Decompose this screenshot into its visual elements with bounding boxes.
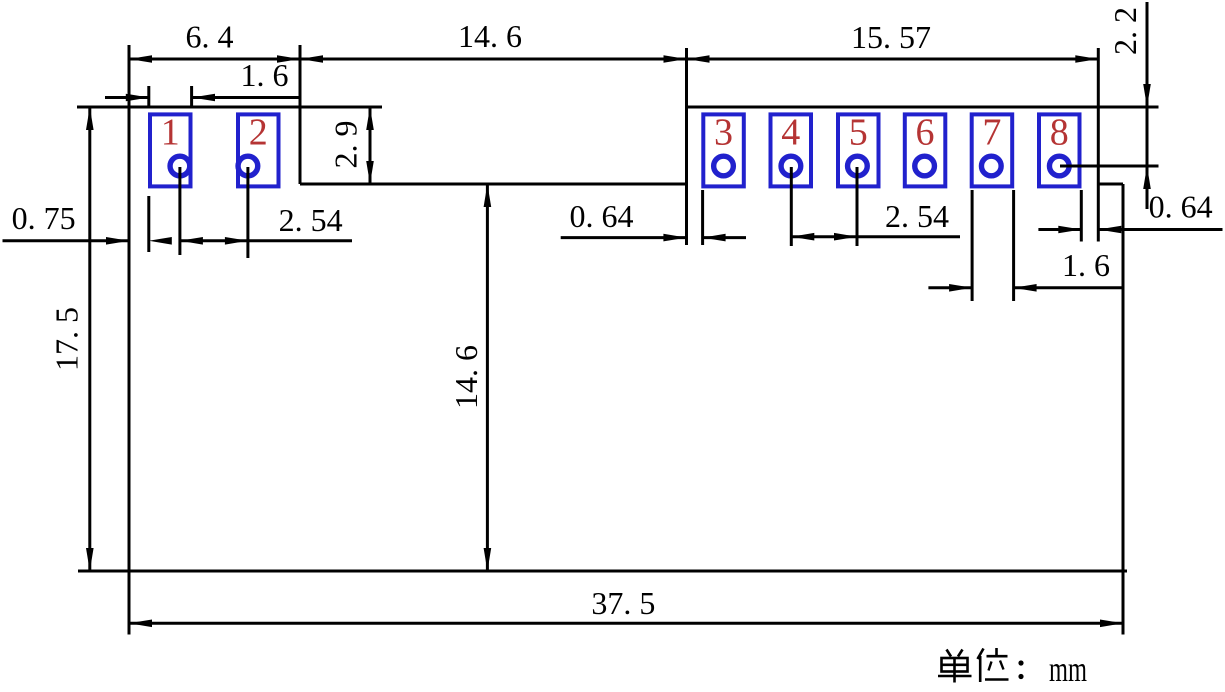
svg-text:2. 2: 2. 2 bbox=[1107, 7, 1143, 55]
svg-text:6. 4: 6. 4 bbox=[186, 19, 234, 55]
svg-text:1. 6: 1. 6 bbox=[1062, 247, 1110, 283]
svg-text:37. 5: 37. 5 bbox=[591, 585, 655, 621]
svg-text:2. 9: 2. 9 bbox=[328, 121, 364, 169]
svg-text:6: 6 bbox=[916, 112, 935, 154]
svg-text:2. 54: 2. 54 bbox=[279, 202, 343, 238]
svg-text:5: 5 bbox=[849, 112, 868, 154]
svg-text:8: 8 bbox=[1050, 112, 1069, 154]
svg-text:15. 57: 15. 57 bbox=[851, 19, 931, 55]
svg-text:17. 5: 17. 5 bbox=[49, 307, 85, 371]
svg-text:14. 6: 14. 6 bbox=[458, 18, 522, 54]
svg-text:mm: mm bbox=[1049, 649, 1087, 689]
svg-text:0. 64: 0. 64 bbox=[570, 198, 634, 234]
svg-text:4: 4 bbox=[781, 112, 800, 154]
svg-text:2. 54: 2. 54 bbox=[885, 198, 949, 234]
svg-text:7: 7 bbox=[982, 112, 1001, 154]
svg-text:0. 75: 0. 75 bbox=[12, 200, 76, 236]
svg-text:0. 64: 0. 64 bbox=[1149, 189, 1213, 225]
svg-text:3: 3 bbox=[714, 112, 733, 154]
svg-text:2: 2 bbox=[249, 112, 268, 154]
svg-text:14. 6: 14. 6 bbox=[448, 345, 484, 409]
svg-text:1. 6: 1. 6 bbox=[241, 57, 289, 93]
svg-text:1: 1 bbox=[161, 112, 180, 154]
